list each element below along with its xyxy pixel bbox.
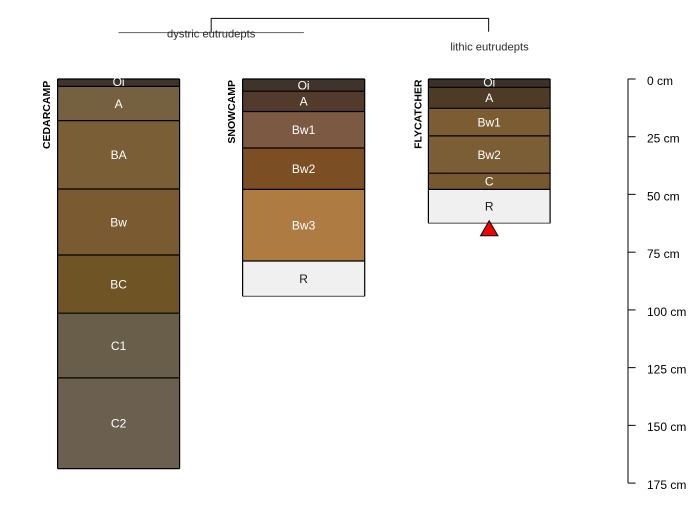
svg-text:FLYCATCHER: FLYCATCHER: [413, 79, 425, 149]
svg-text:175 cm: 175 cm: [647, 478, 686, 492]
svg-text:75 cm: 75 cm: [647, 247, 680, 261]
svg-text:150 cm: 150 cm: [647, 420, 686, 434]
svg-text:25 cm: 25 cm: [647, 132, 680, 146]
svg-text:Oi: Oi: [113, 75, 125, 89]
svg-text:Bw: Bw: [110, 215, 127, 229]
svg-text:Bw2: Bw2: [478, 148, 502, 162]
svg-text:lithic eutrudepts: lithic eutrudepts: [450, 41, 529, 53]
svg-text:A: A: [300, 95, 308, 109]
svg-text:Oi: Oi: [298, 78, 310, 92]
svg-text:dystric eutrudepts: dystric eutrudepts: [167, 28, 256, 40]
svg-text:CEDARCAMP: CEDARCAMP: [41, 81, 53, 149]
svg-text:R: R: [299, 272, 308, 286]
svg-text:50 cm: 50 cm: [647, 189, 680, 203]
svg-text:R: R: [485, 200, 494, 214]
svg-text:BA: BA: [111, 148, 127, 162]
svg-text:C: C: [485, 175, 494, 189]
svg-text:100 cm: 100 cm: [647, 305, 686, 319]
svg-text:Bw3: Bw3: [292, 219, 316, 233]
svg-text:125 cm: 125 cm: [647, 363, 686, 377]
svg-text:Bw2: Bw2: [292, 162, 316, 176]
svg-text:C1: C1: [111, 339, 127, 353]
svg-text:Bw1: Bw1: [478, 115, 502, 129]
svg-text:0 cm: 0 cm: [647, 74, 673, 88]
svg-text:Oi: Oi: [483, 76, 495, 90]
svg-text:SNOWCAMP: SNOWCAMP: [226, 80, 238, 144]
svg-text:A: A: [115, 97, 123, 111]
svg-text:Bw1: Bw1: [292, 123, 316, 137]
svg-text:BC: BC: [110, 277, 127, 291]
svg-text:A: A: [485, 91, 493, 105]
svg-text:C2: C2: [111, 417, 127, 431]
